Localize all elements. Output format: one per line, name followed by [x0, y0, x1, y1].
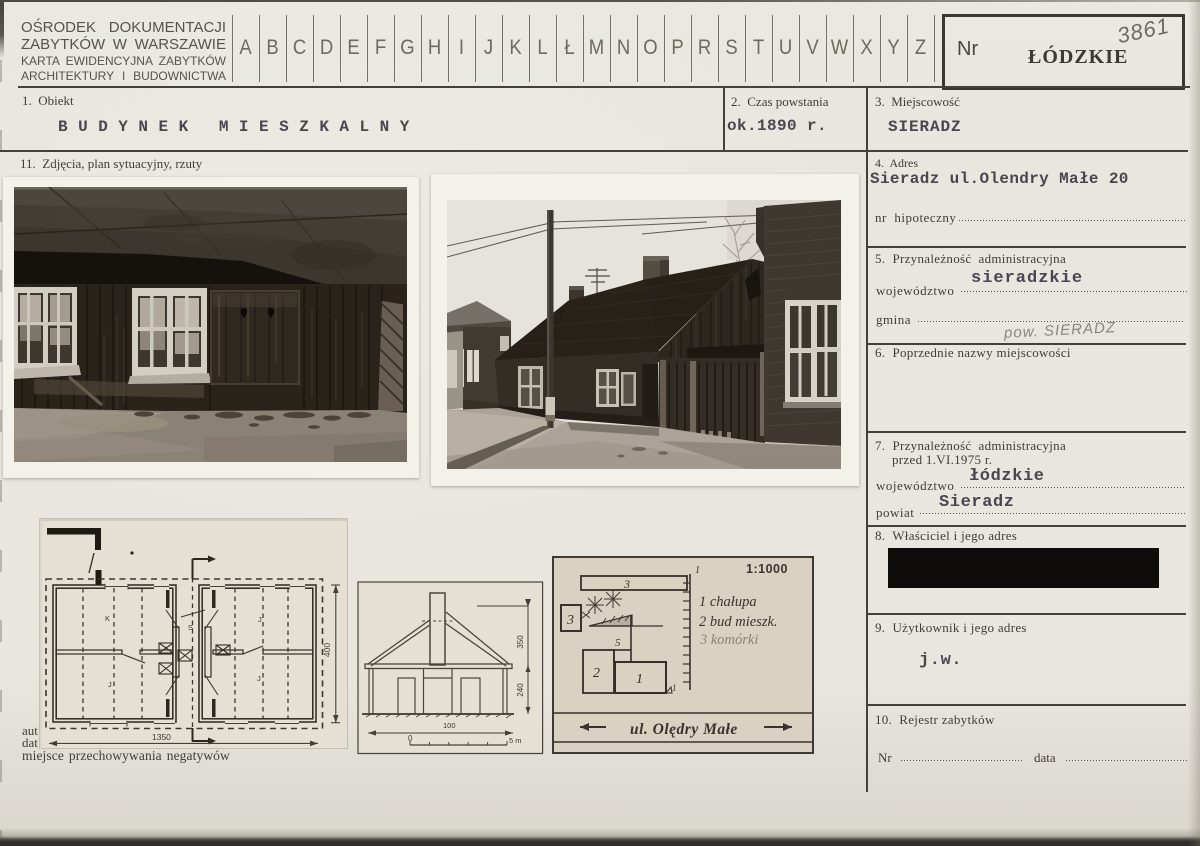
svg-text:S: S	[188, 623, 193, 632]
svg-text:K: K	[105, 614, 110, 623]
svg-text:350: 350	[516, 635, 525, 649]
svg-text:3 komórki: 3 komórki	[699, 632, 758, 648]
svg-text:400: 400	[322, 643, 332, 657]
svg-text:3: 3	[566, 613, 574, 628]
svg-text:1: 1	[695, 565, 700, 576]
svg-text:5 m: 5 m	[509, 736, 522, 745]
svg-text:240: 240	[516, 683, 525, 697]
svg-text:J: J	[258, 615, 262, 624]
svg-text:1: 1	[672, 683, 677, 693]
svg-text:1 chałupa: 1 chałupa	[699, 594, 757, 610]
svg-text:2: 2	[593, 666, 600, 681]
svg-text:5: 5	[615, 637, 621, 649]
svg-text:2 bud mieszk.: 2 bud mieszk.	[699, 614, 778, 630]
svg-text:1: 1	[636, 672, 643, 687]
svg-text:1:1000: 1:1000	[746, 562, 788, 576]
svg-text:100: 100	[443, 721, 456, 730]
svg-text:0: 0	[408, 734, 413, 743]
svg-text:1350: 1350	[152, 732, 171, 742]
svg-text:ul. Olędry Małe: ul. Olędry Małe	[630, 721, 738, 738]
svg-text:J: J	[108, 680, 112, 689]
svg-text:3: 3	[623, 577, 630, 591]
svg-text:J: J	[257, 674, 261, 683]
